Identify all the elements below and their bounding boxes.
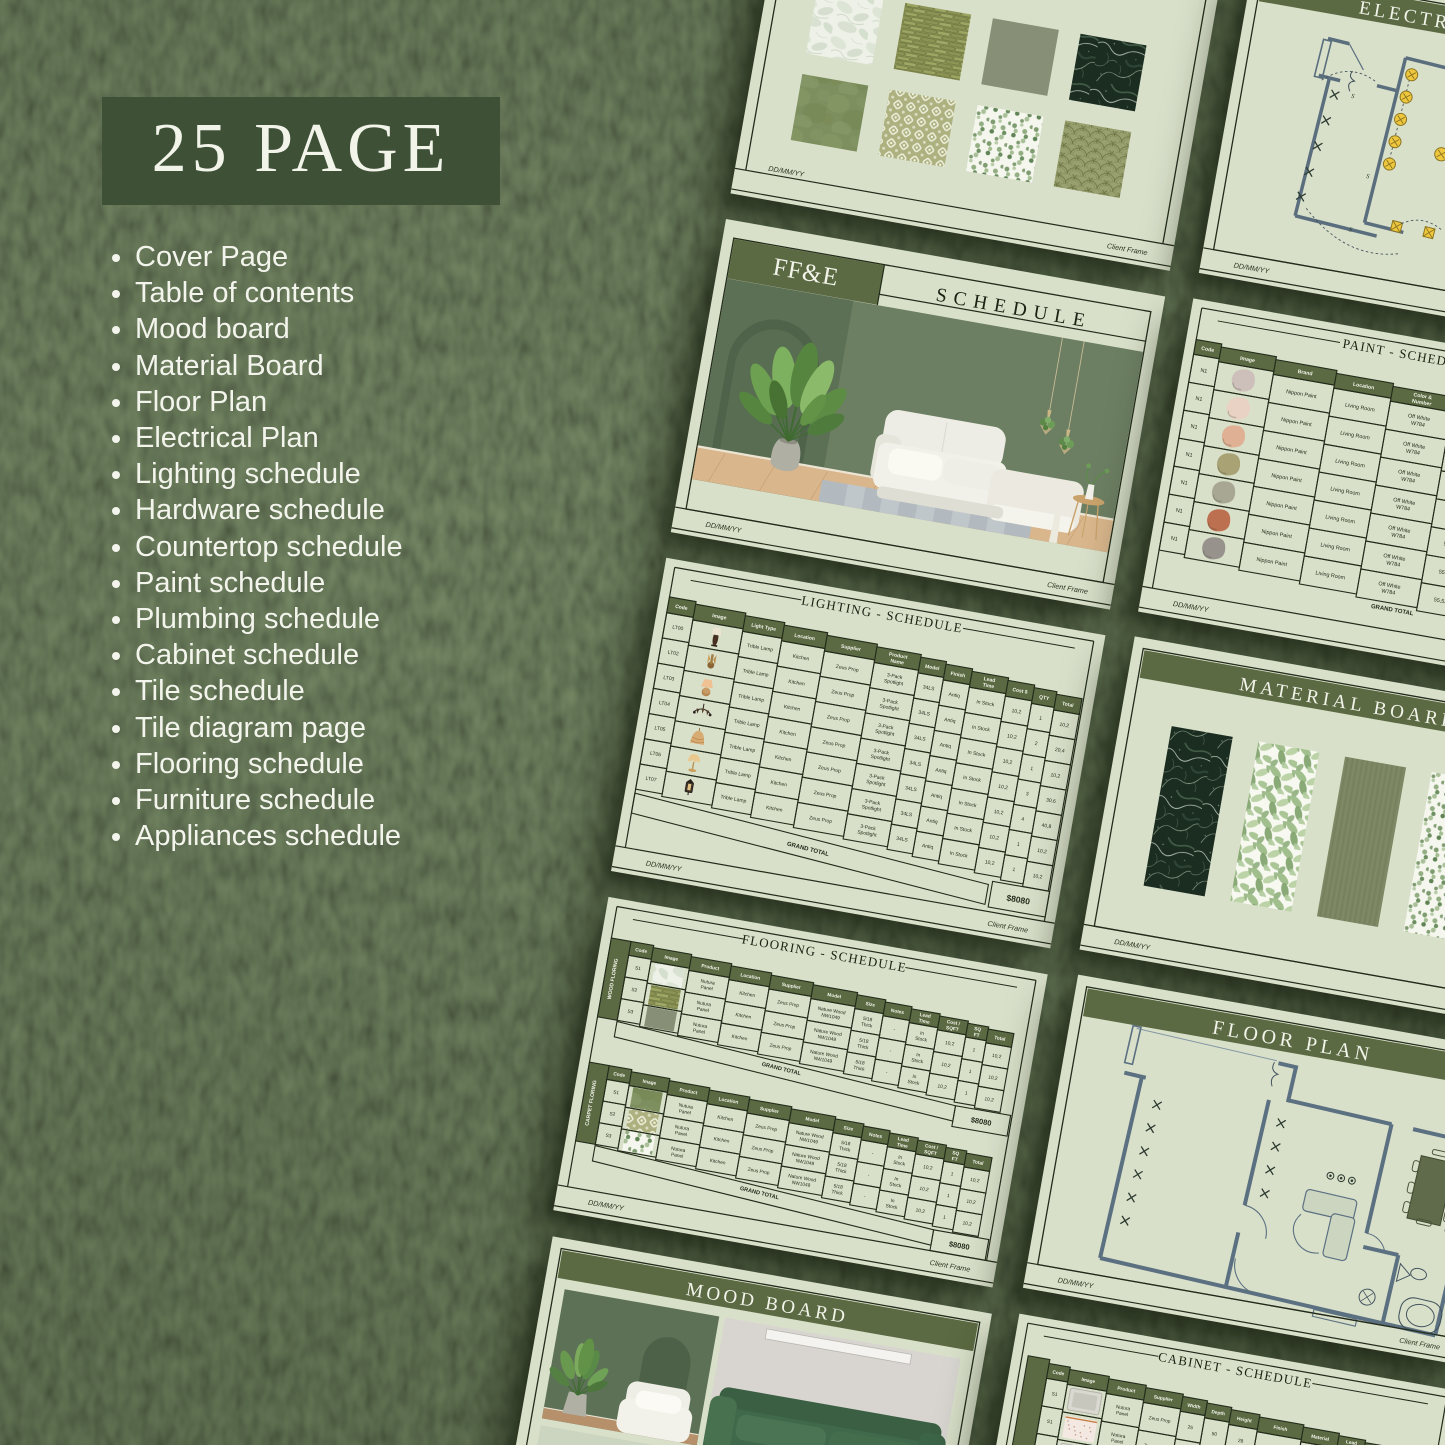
svg-text:-: - [867,1173,870,1178]
svg-text:Client Frame: Client Frame [1047,580,1089,596]
svg-text:W784: W784 [1405,448,1420,456]
svg-text:Stock: Stock [915,1036,928,1044]
svg-text:1: 1 [968,1069,972,1075]
svg-text:Trible Lamp: Trible Lamp [733,719,760,729]
svg-text:10,2: 10,2 [962,1220,973,1228]
svg-text:Client Frame: Client Frame [1399,1336,1441,1352]
svg-text:34LS: 34LS [918,710,931,718]
svg-text:S1: S1 [635,965,642,972]
svg-text:Zeus Prop: Zeus Prop [813,790,837,800]
svg-text:55,52: 55,52 [1438,569,1445,577]
svg-text:SQ: SQ [974,1026,982,1033]
svg-text:-: - [871,1152,874,1157]
svg-text:Living Room: Living Room [1345,402,1376,413]
svg-text:In Stock: In Stock [963,775,982,784]
svg-text:Zeus Prop: Zeus Prop [809,815,833,825]
svg-text:Nippon Paint: Nippon Paint [1281,417,1313,428]
svg-text:Antiq: Antiq [948,692,960,700]
svg-text:50: 50 [1211,1431,1218,1438]
svg-text:Living Room: Living Room [1325,514,1356,525]
svg-text:Zeus Prop: Zeus Prop [769,1043,792,1053]
svg-text:Client Frame: Client Frame [929,1258,971,1274]
svg-text:10,2: 10,2 [923,1164,934,1172]
svg-text:In: In [912,1074,917,1081]
svg-text:Zeus Prop: Zeus Prop [818,765,842,775]
svg-text:DD/MM/YY: DD/MM/YY [1057,1275,1095,1290]
svg-text:Zeus Prop: Zeus Prop [1148,1415,1171,1425]
svg-text:40,8: 40,8 [1041,823,1052,831]
svg-text:In Stock: In Stock [971,724,990,733]
svg-text:Nippon Paint: Nippon Paint [1276,445,1308,456]
svg-text:10,2: 10,2 [989,834,1000,842]
svg-text:W784: W784 [1396,504,1411,512]
svg-text:10,2: 10,2 [1002,758,1013,766]
svg-text:Zeus Prop: Zeus Prop [773,1021,796,1031]
svg-text:-: - [863,1195,866,1200]
svg-text:Nippon Paint: Nippon Paint [1271,473,1303,484]
svg-text:30,6: 30,6 [1046,797,1057,805]
svg-text:In Stock: In Stock [954,825,973,834]
svg-text:DD/MM/YY: DD/MM/YY [587,1198,625,1213]
svg-text:N1: N1 [1180,480,1188,487]
svg-text:Stock: Stock [885,1203,898,1211]
svg-text:SQ: SQ [952,1150,960,1157]
svg-text:Kitchen: Kitchen [788,679,806,688]
svg-text:1: 1 [1030,766,1034,772]
svg-text:In Stock: In Stock [958,800,977,809]
svg-text:$8080: $8080 [948,1239,970,1251]
svg-text:10,2: 10,2 [1037,848,1048,856]
svg-text:1: 1 [950,1171,954,1177]
svg-text:Stock: Stock [907,1079,920,1087]
svg-text:Zeus Prop: Zeus Prop [835,664,859,674]
svg-text:S3: S3 [627,1009,634,1016]
svg-text:Zeus Prop: Zeus Prop [826,714,850,724]
svg-text:34LS: 34LS [909,760,922,768]
svg-text:Kitchen: Kitchen [735,1012,752,1021]
svg-text:LT03: LT03 [663,675,675,683]
svg-text:N1: N1 [1195,396,1203,403]
svg-text:10,2: 10,2 [998,784,1009,792]
svg-text:DD/MM/YY: DD/MM/YY [1113,937,1151,952]
svg-text:Antiq: Antiq [926,818,938,826]
svg-text:10,2: 10,2 [992,1053,1003,1061]
svg-text:In Stock: In Stock [967,750,986,759]
svg-text:Kitchen: Kitchen [765,805,783,814]
svg-text:In: In [890,1198,895,1205]
svg-text:W784: W784 [1381,588,1396,596]
svg-text:S1: S1 [1046,1419,1053,1426]
svg-text:3: 3 [1025,791,1029,797]
svg-text:34LS: 34LS [904,785,917,793]
svg-text:N1: N1 [1200,368,1208,375]
svg-text:Antiq: Antiq [939,742,951,750]
svg-text:Stock: Stock [893,1160,906,1168]
svg-text:10,2: 10,2 [993,809,1004,817]
svg-text:10,2: 10,2 [1007,733,1018,741]
svg-text:W784: W784 [1410,420,1425,428]
svg-text:LT04: LT04 [658,700,670,708]
svg-text:W784: W784 [1391,532,1406,540]
svg-text:Kitchen: Kitchen [774,754,792,763]
svg-text:10,2: 10,2 [1059,722,1070,730]
svg-text:10,2: 10,2 [1011,708,1022,716]
svg-text:-: - [889,1049,892,1054]
svg-text:Kitchen: Kitchen [739,990,756,999]
svg-text:25: 25 [1187,1424,1194,1431]
svg-text:FLOOR PLAN: FLOOR PLAN [1211,1016,1375,1066]
svg-text:1: 1 [1012,867,1016,873]
svg-text:$8080: $8080 [970,1115,992,1127]
svg-text:LT07: LT07 [645,776,657,784]
svg-text:Living Room: Living Room [1320,542,1351,553]
svg-text:Antiq: Antiq [921,843,933,851]
svg-text:$8080: $8080 [1006,893,1031,907]
svg-text:Kitchen: Kitchen [770,780,788,789]
svg-text:In: In [894,1176,899,1183]
svg-text:LT06: LT06 [649,751,661,759]
svg-text:N1: N1 [1190,424,1198,431]
svg-text:S1: S1 [613,1089,620,1096]
svg-text:Nippon Paint: Nippon Paint [1266,501,1298,512]
svg-text:Antiq: Antiq [930,793,942,801]
svg-text:S2: S2 [631,987,638,994]
svg-text:Trible Lamp: Trible Lamp [720,794,747,804]
svg-text:DD/MM/YY: DD/MM/YY [705,520,743,535]
svg-text:Trible Lamp: Trible Lamp [724,769,751,779]
svg-text:Trible Lamp: Trible Lamp [738,693,765,703]
svg-text:LT05: LT05 [654,725,666,733]
svg-text:10,2: 10,2 [988,1075,999,1083]
svg-text:Trible Lamp: Trible Lamp [747,643,774,653]
svg-text:Kitchen: Kitchen [792,654,810,663]
svg-text:DD/MM/YY: DD/MM/YY [645,858,683,873]
svg-text:1: 1 [1039,716,1043,722]
svg-text:Nippon Paint: Nippon Paint [1261,529,1293,540]
svg-text:Antiq: Antiq [935,767,947,775]
svg-text:10,2: 10,2 [966,1199,977,1207]
svg-text:10,2: 10,2 [984,1096,995,1104]
svg-text:N1: N1 [1170,536,1178,543]
svg-text:34LS: 34LS [896,836,909,844]
svg-text:Kitchen: Kitchen [713,1136,730,1145]
svg-text:Zeus Prop: Zeus Prop [822,740,846,750]
svg-text:2: 2 [1034,741,1038,747]
svg-text:N1: N1 [1175,508,1183,515]
svg-text:Zeus Prop: Zeus Prop [777,999,800,1009]
svg-text:Client Frame: Client Frame [987,919,1029,935]
svg-text:10,2: 10,2 [1050,772,1061,780]
svg-text:Zeus Prop: Zeus Prop [747,1167,770,1177]
svg-text:GRAND TOTAL: GRAND TOTAL [786,841,830,858]
svg-text:Kitchen: Kitchen [717,1114,734,1123]
svg-text:Kitchen: Kitchen [779,729,797,738]
svg-text:In Stock: In Stock [976,699,995,708]
svg-text:34LS: 34LS [900,811,913,819]
svg-text:S: S [1350,93,1356,101]
svg-text:In: In [916,1052,921,1059]
svg-text:Zeus Prop: Zeus Prop [831,689,855,699]
svg-text:In Stock: In Stock [949,850,968,859]
svg-text:10,2: 10,2 [919,1186,930,1194]
svg-text:Nippon Paint: Nippon Paint [1286,389,1318,400]
svg-text:W784: W784 [1386,560,1401,568]
svg-text:10,2: 10,2 [984,859,995,867]
svg-text:10,2: 10,2 [941,1062,952,1070]
svg-text:Trible Lamp: Trible Lamp [729,744,756,754]
svg-text:In: In [920,1030,925,1037]
svg-text:34LS: 34LS [913,735,926,743]
svg-text:1: 1 [943,1215,947,1221]
svg-text:S: S [1365,173,1371,181]
svg-text:S3: S3 [605,1133,612,1140]
svg-text:-: - [893,1028,896,1033]
svg-text:-: - [885,1071,888,1076]
svg-text:Antiq: Antiq [944,717,956,725]
svg-text:Zeus Prop: Zeus Prop [751,1145,774,1155]
svg-text:4: 4 [1021,816,1025,822]
svg-text:1: 1 [972,1047,976,1053]
svg-text:Kitchen: Kitchen [783,704,801,713]
svg-text:Kitchen: Kitchen [731,1034,748,1043]
svg-text:Living Room: Living Room [1315,570,1346,581]
svg-text:1: 1 [964,1091,968,1097]
svg-text:10,2: 10,2 [1032,873,1043,881]
svg-text:10,2: 10,2 [970,1177,981,1185]
svg-text:Client Frame: Client Frame [1106,241,1148,257]
svg-text:DD/MM/YY: DD/MM/YY [768,164,806,179]
svg-text:LT00: LT00 [672,624,684,632]
svg-text:Trible Lamp: Trible Lamp [742,668,769,678]
svg-text:28: 28 [1237,1438,1244,1445]
svg-text:Stock: Stock [889,1181,902,1189]
svg-text:55,52: 55,52 [1433,597,1445,605]
svg-text:S1: S1 [1051,1391,1058,1398]
svg-text:W784: W784 [1400,476,1415,484]
svg-text:Living Room: Living Room [1330,486,1361,497]
svg-text:Kitchen: Kitchen [709,1158,726,1167]
svg-text:1: 1 [1016,842,1020,848]
svg-text:In: In [898,1154,903,1161]
svg-text:Zeus Prop: Zeus Prop [755,1123,778,1133]
svg-text:LT02: LT02 [667,650,679,658]
svg-text:Living Room: Living Room [1335,458,1366,469]
svg-text:N1: N1 [1185,452,1193,459]
svg-text:20,4: 20,4 [1054,747,1065,755]
svg-text:10,2: 10,2 [937,1083,948,1091]
svg-text:10,2: 10,2 [945,1040,956,1048]
svg-text:1: 1 [946,1193,950,1199]
svg-text:Stock: Stock [911,1057,924,1065]
svg-text:34LS: 34LS [922,684,935,692]
svg-text:10,2: 10,2 [915,1208,926,1216]
svg-text:DD/MM/YY: DD/MM/YY [1233,260,1271,275]
svg-text:Nippon Paint: Nippon Paint [1256,557,1288,568]
svg-text:DD/MM/YY: DD/MM/YY [1172,599,1210,614]
svg-text:S2: S2 [609,1111,616,1118]
svg-text:Living Room: Living Room [1340,430,1371,441]
